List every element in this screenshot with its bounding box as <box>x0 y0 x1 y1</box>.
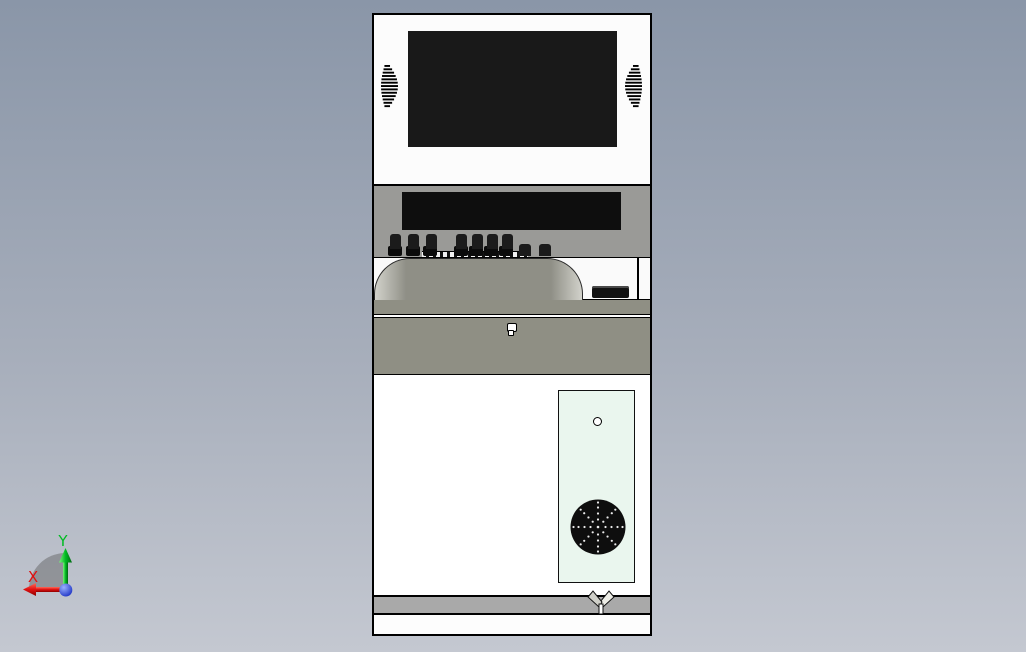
grille-slat <box>383 99 394 101</box>
fan-dot <box>597 512 599 514</box>
bay-divider <box>637 258 639 300</box>
caster-foot-stem <box>599 604 603 614</box>
grille-slat <box>627 95 641 97</box>
fan-dot <box>610 526 612 528</box>
grille-slat <box>627 75 641 77</box>
fan-dot <box>589 526 591 528</box>
panel-key[interactable] <box>390 234 401 249</box>
panel-key[interactable] <box>456 234 467 249</box>
x-axis-label: X <box>28 568 38 586</box>
grille-slat <box>381 88 398 90</box>
grille-slat <box>629 72 640 74</box>
fan-dot <box>606 535 608 537</box>
panel-key[interactable] <box>408 234 419 249</box>
grille-slat <box>382 75 396 77</box>
trim-band[interactable] <box>374 300 650 315</box>
speaker-grille-right-icon <box>622 64 642 110</box>
y-axis-label: Y <box>57 532 68 550</box>
fan-dot <box>614 543 616 545</box>
fan-dot <box>577 526 579 528</box>
fan-dot <box>580 543 582 545</box>
cad-viewport[interactable]: X Y <box>0 0 1026 652</box>
grille-slat <box>633 65 639 67</box>
panel-key[interactable] <box>426 234 437 249</box>
screw-hole <box>593 417 602 426</box>
grille-slat <box>633 105 639 107</box>
fan-dot <box>602 521 604 523</box>
grille-slat <box>383 72 394 74</box>
monitor-panel[interactable] <box>374 15 650 186</box>
cabinet-body[interactable] <box>374 375 650 595</box>
grille-slat <box>384 65 390 67</box>
kick-strip[interactable] <box>374 615 650 634</box>
grille-slat <box>384 105 390 107</box>
grille-slat <box>382 95 396 97</box>
panel-key[interactable] <box>487 234 498 249</box>
grille-slat <box>384 102 393 104</box>
grille-slat <box>629 99 640 101</box>
panel-key[interactable] <box>502 234 513 249</box>
key-row <box>374 186 650 258</box>
control-panel[interactable] <box>374 186 650 258</box>
panel-key-small[interactable] <box>519 244 532 256</box>
fan-dot <box>606 516 608 518</box>
fan-dot <box>572 526 574 528</box>
grille-slat <box>626 78 642 80</box>
grille-slat <box>381 82 398 84</box>
monitor-screen[interactable] <box>408 31 617 147</box>
fan-dot <box>592 531 594 533</box>
fan-dot <box>597 518 599 520</box>
grille-slat <box>381 78 397 80</box>
fan-dot <box>587 516 589 518</box>
grille-slat <box>631 102 640 104</box>
fan-dot <box>611 512 613 514</box>
fan-dot <box>583 526 585 528</box>
fan-dot <box>597 539 599 541</box>
kiosk-model[interactable] <box>372 13 652 636</box>
fan-dot <box>587 535 589 537</box>
fan-dot <box>580 509 582 511</box>
grille-slat <box>625 88 642 90</box>
fan-dot <box>597 506 599 508</box>
speaker-grille-left-icon <box>381 64 401 110</box>
dispenser-bay[interactable] <box>374 258 650 300</box>
fan-dot <box>597 545 599 547</box>
grille-slat <box>381 92 397 94</box>
fan-dot <box>604 526 606 528</box>
caster-foot <box>586 589 616 615</box>
axis-triad[interactable]: X Y <box>5 515 105 615</box>
fan-dot <box>597 501 599 503</box>
fan-dot <box>597 533 599 535</box>
fan-dot <box>583 540 585 542</box>
fan-dot <box>611 540 613 542</box>
fan-dot <box>621 526 623 528</box>
z-axis-origin-sphere <box>59 584 72 597</box>
keyhole[interactable] <box>507 323 517 332</box>
fan-grille[interactable] <box>568 497 628 557</box>
fan-dot <box>592 521 594 523</box>
fan-dot <box>602 531 604 533</box>
grille-slat <box>381 85 398 87</box>
fan-dot <box>597 526 600 529</box>
grille-slat <box>631 68 640 70</box>
fan-dot <box>616 526 618 528</box>
fan-dot <box>583 512 585 514</box>
cover-dome[interactable] <box>374 258 583 300</box>
drawer-panel[interactable] <box>374 317 650 375</box>
grille-slat <box>625 85 642 87</box>
grille-slat <box>384 68 393 70</box>
panel-key-small[interactable] <box>539 244 552 256</box>
panel-key[interactable] <box>472 234 483 249</box>
grille-slat <box>625 82 642 84</box>
vent-panel[interactable] <box>558 390 635 583</box>
grille-slat <box>626 92 642 94</box>
fan-dot <box>597 550 599 552</box>
bay-button[interactable] <box>592 286 629 298</box>
fan-dot <box>614 509 616 511</box>
